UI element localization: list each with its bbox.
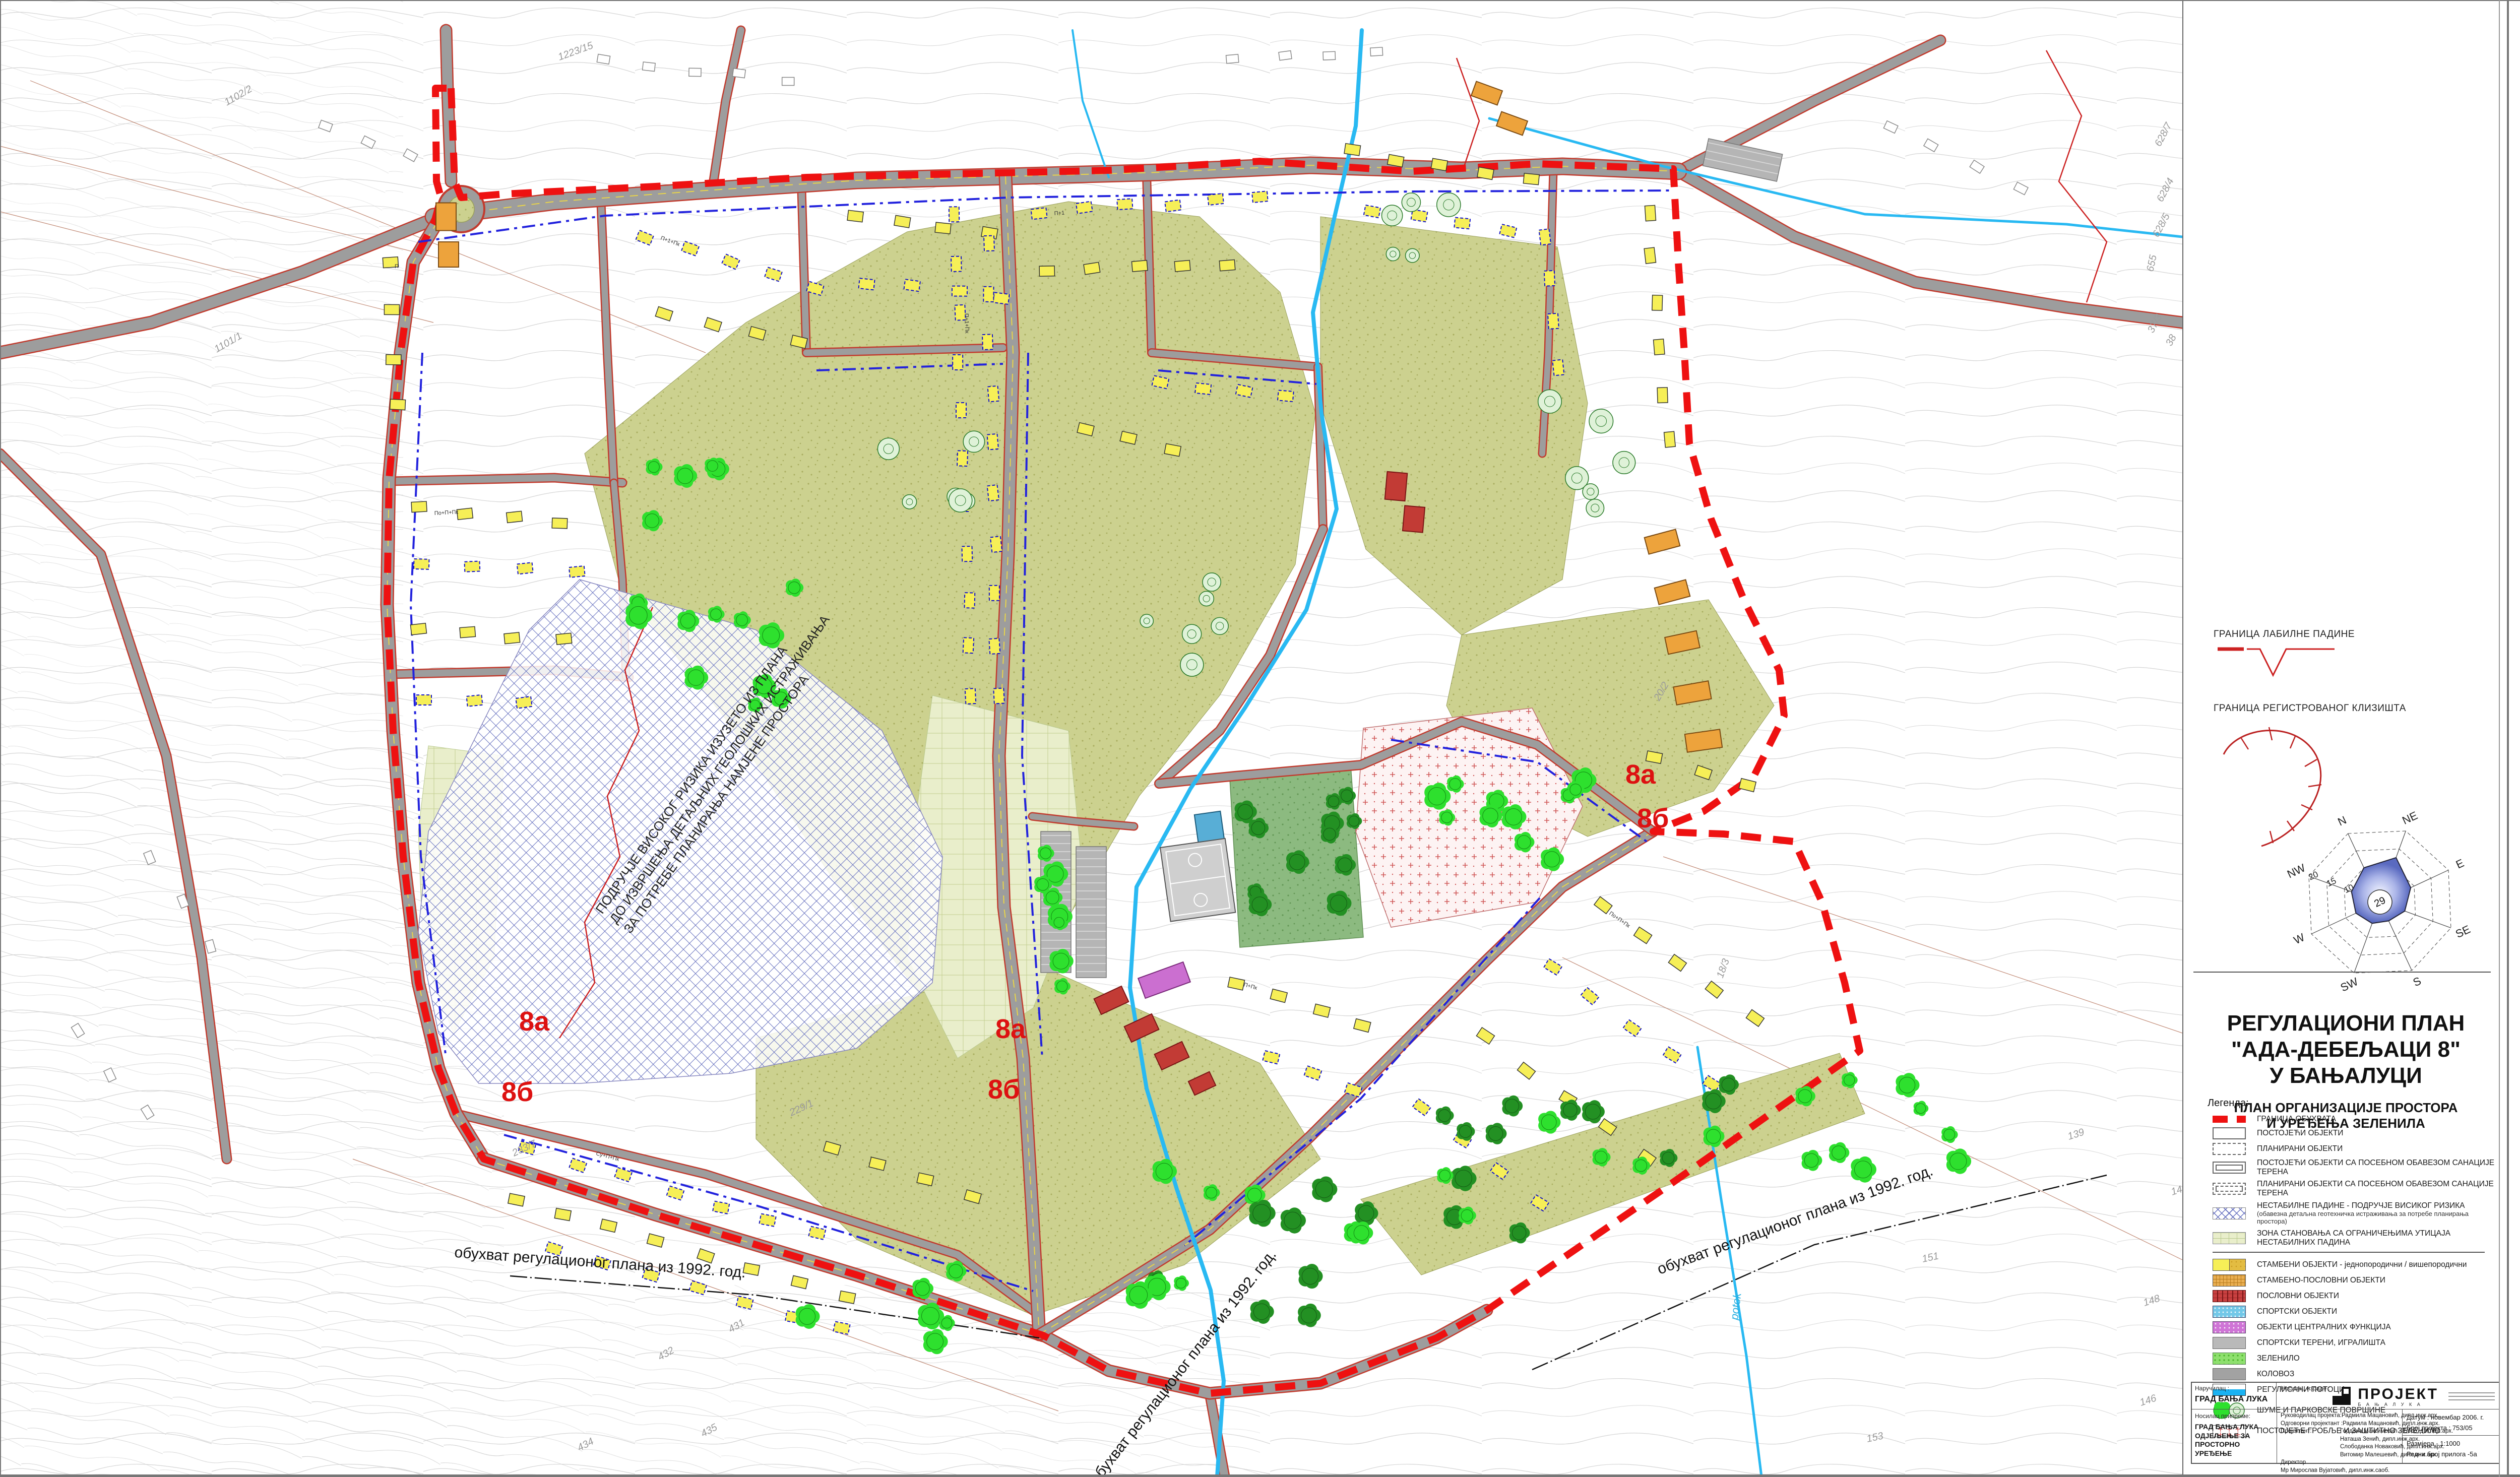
tree-blob (927, 1333, 943, 1350)
tree-icon (1386, 247, 1400, 261)
tree-blob (1053, 953, 1069, 969)
house-type-label: П+1 (1054, 210, 1064, 217)
house-rect (760, 1214, 776, 1227)
tree-blob (1156, 1163, 1172, 1180)
tree-ring (1402, 193, 1420, 212)
zone-limited-swatch (2213, 1232, 2246, 1244)
legend-label: ЗЕЛЕНИЛО (2257, 1354, 2300, 1363)
house-marker (990, 536, 1002, 552)
house-marker (732, 69, 745, 78)
house-rect (956, 403, 966, 418)
house-marker (957, 451, 968, 466)
tree-blob (1037, 878, 1049, 890)
landslide-label: ГРАНИЦА РЕГИСТРОВАНОГ КЛИЗИШТА (2214, 703, 2476, 714)
frame-left (0, 0, 1, 1477)
zone-label: 8а (995, 1014, 1026, 1044)
house-rect (411, 501, 427, 512)
house-rect (1252, 191, 1268, 203)
house-marker (935, 222, 951, 234)
frame-top (0, 0, 2520, 1)
house-marker (411, 501, 427, 512)
tree-blob (1916, 1104, 1926, 1114)
house-marker (556, 633, 572, 645)
tree-blob (1483, 808, 1498, 823)
legend-item-unstable: НЕСТАБИЛНЕ ПАДИНЕ - ПОДРУЧЈЕ ВИСИКОГ РИЗ… (2213, 1201, 2500, 1226)
attachment-line: Редни број прилога -5а (2407, 1450, 2495, 1458)
tree-blob (949, 1264, 963, 1278)
plan-title-line3: У БАЊАЛУЦИ (2183, 1063, 2508, 1089)
legend-item-planned-sanation: ПЛАНИРАНИ ОБЈЕКТИ СА ПОСЕБНОМ ОБАВЕЗОМ С… (2213, 1180, 2500, 1198)
house-rect (1477, 167, 1494, 180)
house-rect (1644, 247, 1656, 264)
house-rect (1454, 218, 1470, 229)
personnel-cell: Руководилац пројекта:Радмила Мацановић, … (2277, 1409, 2403, 1463)
tree-blob (1635, 1160, 1647, 1171)
house-marker (552, 518, 568, 529)
parking-rect (1076, 847, 1106, 978)
house-marker (988, 386, 999, 402)
tree-blob (1328, 796, 1339, 807)
tree-ring (1140, 614, 1153, 627)
tree-blob (1354, 1226, 1369, 1241)
swatch-inner (2216, 1186, 2243, 1192)
house-rect (416, 695, 431, 705)
plan-title-line2: "АДА-ДЕБЕЉАЦИ 8" (2183, 1037, 2508, 1063)
house-rect (993, 292, 1009, 304)
tree-blob (1439, 1170, 1451, 1181)
tree-blob (711, 609, 722, 620)
tree-blob (1832, 1146, 1846, 1160)
tree-ring (1538, 390, 1562, 413)
tree-blob (1253, 1204, 1271, 1222)
house-rect (1544, 271, 1555, 286)
tree-icon (902, 495, 916, 509)
legend-item-residential: СТАМБЕНИ ОБЈЕКТИ - једнопородични / више… (2213, 1259, 2500, 1271)
tree-icon (1381, 205, 1402, 226)
tree-icon (1140, 614, 1153, 627)
house-marker (1174, 261, 1190, 272)
tree-blob (680, 614, 695, 628)
house-rect (965, 688, 976, 704)
business-building-rect (1385, 472, 1408, 501)
title-block: РЕГУЛАЦИОНИ ПЛАН "АДА-ДЕБЕЉАЦИ 8" У БАЊА… (2183, 1010, 2508, 1131)
legend-item-central: ОБЈЕКТИ ЦЕНТРАЛНИХ ФУНКЦИЈА (2213, 1321, 2500, 1333)
house-marker (760, 1214, 776, 1227)
projekt-logo-text: ПРОЈЕКТ (2358, 1387, 2438, 1402)
house-rect (952, 286, 967, 296)
house-rect (983, 287, 993, 302)
tree-blob (1301, 1308, 1317, 1323)
legend-item-zone-limited: ЗОНА СТАНОВАЊА СА ОГРАНИЧЕЊИМА УТИЦАЈА Н… (2213, 1229, 2500, 1247)
house-rect (949, 207, 960, 222)
tree-blob (1517, 836, 1531, 849)
business-swatch (2213, 1290, 2246, 1302)
legend-item-boundary: ГРАНИЦА ОБУХВАТА (2213, 1115, 2500, 1124)
house-rect (989, 638, 1000, 654)
house-marker (414, 559, 429, 569)
tree-ring (1180, 653, 1204, 676)
tree-ring (902, 495, 916, 509)
house-rect (988, 386, 999, 402)
tree-blob (707, 461, 718, 472)
personnel-role: Одговорни пројектант : (2281, 1420, 2343, 1428)
tree-ring (1203, 573, 1221, 591)
legend-item-road: КОЛОВОЗ (2213, 1368, 2500, 1380)
tree-blob (1252, 897, 1268, 913)
zone-label: 8б (1637, 803, 1669, 833)
house-marker (1278, 390, 1294, 401)
tree-blob (1450, 779, 1461, 790)
maker-cell: Носилац израде : ПРОЈЕКТ Б А Њ А Л У К А (2277, 1383, 2499, 1409)
house-marker (951, 256, 962, 272)
house-rect (516, 696, 532, 709)
house-marker (1131, 261, 1148, 272)
house-rect (1548, 313, 1559, 329)
sport-fields-swatch (2213, 1337, 2246, 1349)
personnel-role: Мр Мирослав Вујатовић (2281, 1467, 2346, 1475)
personnel-line: Руководилац пројекта:Радмила Мацановић, … (2281, 1412, 2399, 1420)
tree-blob (1253, 1304, 1270, 1320)
side-panel: ГРАНИЦА ЛАБИЛНЕ ПАДИНЕ ГРАНИЦА РЕГИСТРОВ… (2182, 0, 2508, 1477)
house-marker (1539, 229, 1551, 245)
projekt-logo-sub: Б А Њ А Л У К А (2358, 1402, 2438, 1407)
tree-blob (1944, 1129, 1955, 1140)
tree-ring (1586, 499, 1604, 517)
house-rect (384, 304, 399, 314)
house-marker (390, 399, 406, 410)
greenery-swatch (2213, 1353, 2246, 1365)
tree-blob (1722, 1078, 1735, 1091)
house-rect (984, 235, 994, 251)
business-building (1403, 505, 1425, 532)
house-marker (1552, 359, 1564, 375)
plan-title-line1: РЕГУЛАЦИОНИ ПЛАН (2183, 1010, 2508, 1037)
project-no: Број пројекта : 753/05 (2407, 1424, 2495, 1432)
tree-ring (1182, 624, 1202, 644)
tree-ring (1381, 205, 1402, 226)
house-rect (1370, 47, 1383, 56)
house-rect (1165, 200, 1181, 212)
tree-blob (1289, 854, 1305, 870)
house-rect (1664, 431, 1676, 447)
house-rect (1657, 388, 1668, 403)
house-marker (1644, 247, 1656, 264)
house-marker (517, 562, 533, 574)
legend-divider (2213, 1252, 2485, 1253)
house-marker (1344, 144, 1361, 156)
legend-label: ПЛАНИРАНИ ОБЈЕКТИ СА ПОСЕБНОМ ОБАВЕЗОМ С… (2257, 1180, 2500, 1198)
rose-direction-label: E (2454, 857, 2466, 871)
house-marker (847, 210, 863, 222)
house-rect (1219, 260, 1235, 271)
date-cell: Датум : новембар 2006. г. Број пројекта … (2403, 1409, 2499, 1436)
tree-blob (1512, 1226, 1526, 1240)
rose-direction-label: NE (2400, 809, 2419, 827)
legend-label: СПОРТСКИ ТЕРЕНИ, ИГРАЛИШТА (2257, 1338, 2385, 1347)
legend-item-greenery: ЗЕЛЕНИЛО (2213, 1353, 2500, 1365)
house-rect (963, 637, 974, 653)
house-marker (782, 78, 794, 86)
legend-label: СТАМБЕНИ ОБЈЕКТИ - једнопородични / више… (2257, 1260, 2467, 1269)
house-rect (1117, 199, 1132, 210)
personnel-line: Мр Мирослав Вујатовић, дипл.инж.саоб. (2281, 1467, 2399, 1475)
house-marker (1645, 205, 1656, 221)
legend-item-res-business: СТАМБЕНО-ПОСЛОВНИ ОБЈЕКТИ (2213, 1274, 2500, 1287)
legend-title: Легенда: (2208, 1098, 2249, 1109)
house-marker (386, 355, 401, 365)
tree-ring (1211, 617, 1228, 634)
tree-icon (1182, 624, 1202, 644)
tree-blob (1489, 1127, 1503, 1141)
tree-blob (1046, 891, 1059, 904)
house-rect (894, 215, 911, 228)
house-rect (1208, 194, 1224, 205)
rose-direction-label: W (2292, 931, 2307, 947)
residential-swatch (2213, 1259, 2246, 1271)
house-rect (554, 1208, 571, 1221)
tree-blob (1455, 1170, 1472, 1187)
personnel-line: Витомир Малешевић, дипл.инж.арх. (2281, 1451, 2399, 1459)
house-rect (460, 626, 475, 637)
house-marker (984, 235, 994, 251)
tree-ring (1199, 591, 1214, 606)
tree-blob (1438, 1110, 1451, 1122)
house-rect (1431, 158, 1447, 171)
house-type-label: По+П+Пк (434, 509, 459, 517)
rose-direction-label: SE (2453, 923, 2472, 940)
frame-right (2507, 0, 2509, 1477)
frame-bottom (0, 1474, 2520, 1477)
client-cell: Наручилац : ГРАД БАЊА ЛУКА (2192, 1383, 2277, 1409)
house-marker (1454, 218, 1470, 229)
prep-cell: Носилац припреме: ГРАД БАЊА ЛУКА ОДЈЕЉЕЊ… (2192, 1409, 2277, 1463)
house-rect (713, 1201, 729, 1214)
house-marker (993, 292, 1009, 304)
zone-label: 8а (1625, 759, 1656, 790)
plan-sheet: 8а8б8а8б8а8бПОДРУЧЈЕ ВИСОКОГ РИЗИКА ИЗУЗ… (0, 0, 2520, 1477)
house-marker (1279, 51, 1292, 60)
legend-item-business: ПОСЛОВНИ ОБЈЕКТИ (2213, 1290, 2500, 1302)
house-marker (993, 688, 1004, 703)
legend-item-sport-obj: СПОРТСКИ ОБЈЕКТИ (2213, 1306, 2500, 1318)
tree-blob (1844, 1075, 1855, 1085)
personnel-role: Пројектант: (2281, 1428, 2340, 1436)
house-marker (1544, 271, 1555, 286)
house-rect (410, 623, 426, 635)
legend-label: СТАМБЕНО-ПОСЛОВНИ ОБЈЕКТИ (2257, 1276, 2385, 1285)
tree-blob (1899, 1077, 1915, 1093)
tree-ring (1406, 248, 1420, 263)
legend-label: ПОСЛОВНИ ОБЈЕКТИ (2257, 1292, 2339, 1301)
tree-blob (1595, 1151, 1607, 1163)
house-rect (982, 334, 993, 350)
personnel-line: Пројектант:Гордана Максимовић - Ђосо, д.… (2281, 1428, 2399, 1436)
tree-blob (1541, 1115, 1556, 1130)
prep-line3: ПРОСТОРНО УРЕЂЕЊЕ (2195, 1440, 2274, 1458)
house-rect (597, 54, 610, 65)
house-marker (1117, 199, 1132, 210)
tree-blob (1505, 809, 1522, 825)
house-marker (987, 434, 999, 450)
legend-item-existing: ПОСТОЈЕЋИ ОБЈЕКТИ (2213, 1127, 2500, 1139)
residential-business-building-rect (438, 242, 459, 267)
tree-blob (677, 468, 693, 484)
residential-half-h2 (2230, 1259, 2246, 1270)
house-marker (504, 632, 520, 644)
business-building (1385, 472, 1408, 501)
tree-blob (1950, 1153, 1967, 1170)
house-rect (1539, 229, 1551, 245)
house-marker (1076, 202, 1093, 214)
house-rect (782, 78, 794, 86)
planned-swatch (2213, 1143, 2246, 1155)
labile-slope-icon (2214, 640, 2365, 680)
tree-icon (1180, 653, 1204, 676)
personnel-line: Директор (2281, 1459, 2399, 1467)
house-rect (951, 256, 962, 272)
residential-half-h1 (2213, 1259, 2230, 1270)
house-marker (713, 1201, 729, 1214)
tree-blob (1040, 848, 1051, 859)
house-marker (1165, 200, 1181, 212)
house-marker (953, 355, 963, 370)
legend-label: НЕСТАБИЛНЕ ПАДИНЕ - ПОДРУЧЈЕ ВИСИКОГ РИЗ… (2257, 1201, 2500, 1226)
tree-blob (648, 462, 659, 473)
tree-blob (1570, 784, 1582, 796)
house-marker (1252, 191, 1268, 203)
house-marker (467, 695, 483, 707)
swatch-inner (2216, 1165, 2243, 1171)
projekt-logo-icon (2333, 1387, 2353, 1407)
house-rect (1645, 205, 1656, 221)
tree-blob (1662, 1152, 1674, 1164)
house-marker (989, 586, 999, 601)
tree-blob (1804, 1153, 1818, 1167)
tree-ring (1589, 409, 1613, 433)
house-rect (732, 69, 745, 78)
house-marker (464, 561, 480, 572)
house-marker (983, 287, 993, 302)
personnel-line: Одговорни пројектант :Радмила Мацановић,… (2281, 1420, 2399, 1428)
projekt-logo: ПРОЈЕКТ Б А Њ А Л У К А (2333, 1387, 2438, 1407)
tree-blob (688, 670, 704, 685)
house-marker (1364, 205, 1380, 218)
tree-blob (1428, 787, 1445, 805)
tree-blob (1324, 828, 1336, 840)
existing-swatch (2213, 1127, 2246, 1139)
house-marker (1208, 194, 1224, 205)
house-rect (859, 278, 875, 290)
scale-line: Размјера - 1:1000 (2407, 1440, 2495, 1447)
business-building-rect (1403, 505, 1425, 532)
tree-blob (1585, 1104, 1600, 1119)
house-rect (517, 562, 533, 574)
tree-blob (1129, 1286, 1148, 1304)
tree-blob (1302, 1268, 1318, 1284)
house-marker (643, 62, 656, 72)
tree-icon (1437, 193, 1461, 217)
residential-business-building (438, 242, 459, 267)
tree-blob (941, 1318, 952, 1328)
house-marker (416, 695, 431, 705)
sports-court (1160, 839, 1235, 922)
tree-blob (1563, 1103, 1577, 1117)
house-marker (410, 623, 426, 635)
house-marker (1652, 295, 1663, 311)
tree-blob (1441, 812, 1452, 823)
res-business-swatch (2213, 1274, 2246, 1287)
tree-ring (877, 438, 899, 460)
tree-icon (1586, 499, 1604, 517)
house-rect (1278, 390, 1294, 401)
house-marker (554, 1208, 571, 1221)
house-marker (457, 508, 473, 520)
legend-label: ПОСТОЈЕЋИ ОБЈЕКТИ (2257, 1129, 2343, 1138)
house-marker (1664, 431, 1676, 447)
house-marker (1431, 158, 1447, 171)
tree-blob (1349, 816, 1359, 826)
tree-ring (1437, 193, 1461, 217)
prep-label: Носилац припреме: (2195, 1412, 2274, 1420)
tree-blob (1247, 1188, 1262, 1202)
house-marker (1523, 173, 1539, 185)
house-marker (956, 403, 966, 418)
tree-blob (1341, 790, 1353, 801)
house-marker (982, 334, 993, 350)
house-marker (597, 54, 610, 65)
house-rect (953, 355, 963, 370)
tree-blob (1338, 858, 1352, 872)
tree-blob (1798, 1089, 1812, 1103)
logo-contact-lines (2448, 1390, 2495, 1403)
tree-blob (1238, 804, 1253, 819)
tree-blob (1057, 981, 1067, 992)
personnel-line: Наташа Зенић, дипл.инж.арх. (2281, 1436, 2399, 1444)
house-rect (1364, 205, 1380, 218)
house-rect (457, 508, 473, 520)
house-rect (1652, 295, 1663, 311)
house-rect (1344, 144, 1361, 156)
house-rect (962, 546, 972, 562)
house-rect (957, 451, 968, 466)
tree-icon (1589, 409, 1613, 433)
legend-labile-slope: ГРАНИЦА ЛАБИЛНЕ ПАДИНЕ (2214, 629, 2476, 683)
personnel-line: Слободанка Новаковић, дипл.инж.арх. (2281, 1443, 2399, 1451)
house-rect (689, 68, 701, 76)
house-marker (1039, 266, 1054, 277)
central-swatch (2213, 1321, 2246, 1333)
house-rect (1131, 261, 1148, 272)
house-rect (1552, 359, 1564, 375)
house-marker (516, 696, 532, 709)
legend-label: СПОРТСКИ ОБЈЕКТИ (2257, 1307, 2337, 1316)
legend-label: ОБЈЕКТИ ЦЕНТРАЛНИХ ФУНКЦИЈА (2257, 1323, 2391, 1332)
house-marker (1370, 47, 1383, 56)
tree-blob (645, 514, 659, 528)
legend-label: ПОСТОЈЕЋИ ОБЈЕКТИ СА ПОСЕБНОМ ОБАВЕЗОМ С… (2257, 1159, 2500, 1177)
tree-blob (915, 1281, 929, 1296)
tree-blob (736, 614, 748, 626)
tree-blob (788, 582, 800, 594)
tree-blob (1284, 1212, 1301, 1229)
house-marker (1195, 383, 1211, 395)
tree-icon (1583, 484, 1599, 500)
tree-icon (1402, 193, 1420, 212)
residential-business-building (436, 203, 456, 231)
tree-icon (949, 489, 972, 512)
rose-direction-label: S (2411, 975, 2423, 989)
legend-label: КОЛОВОЗ (2257, 1370, 2294, 1379)
